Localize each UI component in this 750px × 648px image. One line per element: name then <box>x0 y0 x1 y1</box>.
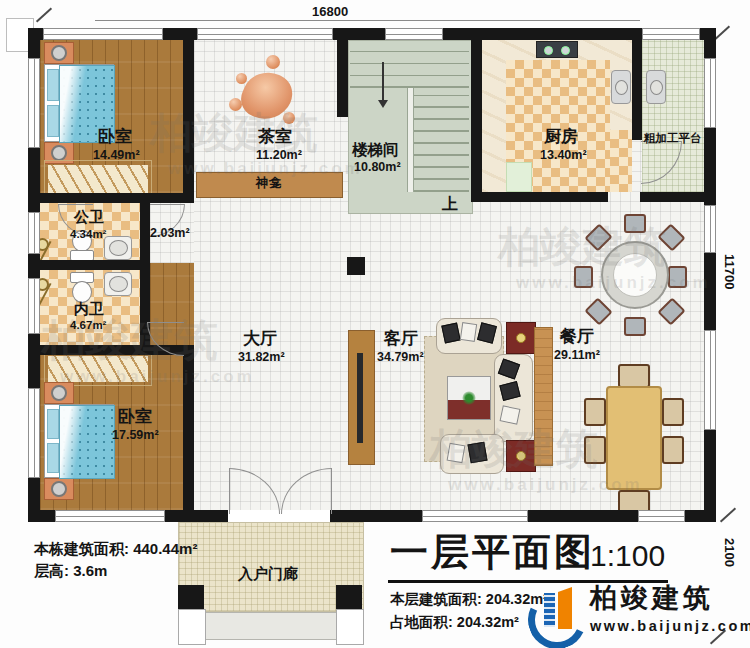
kitchen-sink <box>611 70 631 104</box>
window <box>43 28 163 40</box>
porch-column-left <box>178 585 204 609</box>
logo-icon <box>528 583 584 639</box>
bathroom-sink <box>104 236 132 260</box>
nightstand <box>44 42 74 64</box>
plan-title: 一层平面图 <box>390 533 595 571</box>
watermark: 柏竣建筑 <box>430 428 598 470</box>
stair-up-label: 上 <box>442 196 458 212</box>
window <box>28 58 40 148</box>
stair-right-flight <box>412 88 469 192</box>
brand-name: 柏竣建筑 <box>590 585 714 612</box>
logo-building-blue <box>544 593 555 627</box>
window <box>197 28 333 40</box>
footprint-area-line: 占地面积: 204.32m² <box>390 615 519 630</box>
wall-kitchen-platform <box>632 40 642 140</box>
bed-pillow <box>47 105 59 137</box>
bed <box>44 404 114 478</box>
window <box>638 510 685 522</box>
wall-under-kitchen-b <box>640 192 716 202</box>
platform-sink <box>646 70 666 104</box>
living-room-area: 34.79m² <box>377 351 424 364</box>
great-hall-label: 大厅 <box>243 330 277 347</box>
porch-steps <box>204 612 338 640</box>
wall-bath-divider <box>28 260 150 270</box>
window <box>422 510 528 522</box>
bedroom-bottom-label: 卧室 <box>118 408 152 425</box>
floor-plan: 柏竣建筑 www.baijunjz.com 柏竣建筑 www.baijunjz.… <box>0 0 750 648</box>
building-total-area: 本栋建筑面积: 440.44m² <box>34 541 197 556</box>
tea-art-dot <box>266 55 280 69</box>
bed-pillow <box>47 409 59 439</box>
porch-column-base <box>336 609 364 645</box>
corridor-area: 2.03m² <box>150 227 190 240</box>
dimension-top: 16800 <box>308 5 352 18</box>
dining-chair <box>662 398 684 426</box>
bedroom-top-label: 卧室 <box>98 128 132 145</box>
watermark-url: www.baijunjz.com <box>168 160 363 177</box>
logo-building-orange <box>558 587 572 629</box>
stairwell-area: 10.80m² <box>354 161 401 174</box>
window <box>28 212 40 254</box>
hall-column <box>347 257 365 275</box>
dimension-right-porch: 2100 <box>722 538 737 567</box>
wall-kitchen-left <box>471 40 482 202</box>
window <box>55 510 165 522</box>
private-bathroom-label: 内卫 <box>74 301 104 316</box>
corner-tick-top-right <box>714 26 730 41</box>
tv <box>357 353 363 443</box>
bed-pillow <box>47 443 59 473</box>
kitchen-label: 厨房 <box>544 128 578 145</box>
dining-room-label: 餐厅 <box>560 328 594 345</box>
dining-chair <box>584 398 606 426</box>
watermark-url: www.baijunjz.com <box>448 476 643 493</box>
window <box>28 388 40 478</box>
building-floor-height: 层高: 3.6m <box>34 563 107 578</box>
tv-cabinet <box>348 330 375 465</box>
plan-scale: 1:100 <box>590 541 665 571</box>
plant <box>462 391 476 405</box>
window <box>704 330 716 430</box>
watermark: 柏竣建筑 <box>42 318 218 362</box>
kitchen-mat <box>506 162 532 192</box>
bed-pillow <box>47 69 59 101</box>
corner-tick-top-left <box>36 8 52 23</box>
public-bathroom-area: 4.34m² <box>70 229 106 241</box>
nightstand <box>44 478 74 500</box>
tea-art-dot <box>236 73 247 84</box>
bed-mattress <box>59 405 115 479</box>
wall-under-kitchen-a <box>471 192 608 202</box>
watermark-url: www.baijunjz.com <box>516 274 711 291</box>
living-room-label: 客厅 <box>384 330 418 347</box>
prep-platform-label: 粗加工平台 <box>644 133 702 145</box>
watermark: 柏竣建筑 <box>498 226 666 268</box>
sofa-top <box>436 318 502 354</box>
stair-railing <box>407 88 414 192</box>
dining-chair <box>618 364 650 388</box>
tea-room-label: 茶室 <box>258 128 292 145</box>
brand-website: www.baijunjz.com <box>590 619 750 634</box>
window <box>642 28 700 40</box>
shrine-label: 神龛 <box>196 177 341 190</box>
window <box>385 28 443 40</box>
dimension-line-top <box>95 20 640 21</box>
brand-logo: 柏竣建筑 www.baijunjz.com <box>528 583 718 641</box>
logo-swoosh <box>520 583 594 648</box>
entry-porch-label: 入户门廊 <box>238 566 298 581</box>
bedroom-top-area: 14.49m² <box>93 149 140 162</box>
stair-arrow-head <box>378 100 388 108</box>
kitchen-checker-ext <box>610 130 632 192</box>
dining-chair <box>624 317 646 336</box>
burner <box>544 46 553 55</box>
bedroom-bottom-area: 17.59m² <box>112 429 159 442</box>
stairwell-label: 楼梯间 <box>352 142 399 158</box>
stair-upper-flight <box>350 48 469 88</box>
private-bathroom-area: 4.67m² <box>70 320 106 332</box>
burner <box>561 46 570 55</box>
dining-chair <box>662 436 684 464</box>
public-bathroom-label: 公卫 <box>74 209 104 224</box>
coffee-table <box>447 376 491 420</box>
wall-under-bedroom-top <box>28 193 194 203</box>
porch-column-right <box>336 585 362 609</box>
kitchen-area: 13.40m² <box>540 149 587 162</box>
window <box>704 58 716 128</box>
bathroom-sink <box>104 272 132 296</box>
watermark-url: www.baijunjz.com <box>60 368 255 385</box>
window <box>28 278 40 334</box>
stair-arrow-line <box>382 62 384 102</box>
great-hall-area: 31.82m² <box>238 351 285 364</box>
stove <box>536 41 578 58</box>
window <box>704 205 716 253</box>
floor-area-line: 本层建筑面积: 204.32m² <box>390 592 548 607</box>
porch-column-base <box>178 609 206 645</box>
corner-tick-bottom-right <box>720 508 736 523</box>
dining-room-area: 29.11m² <box>554 349 600 362</box>
dimension-right: 11700 <box>722 254 737 289</box>
side-cabinet <box>506 322 536 354</box>
tea-room-area: 11.20m² <box>256 149 302 162</box>
wall-tea-right <box>337 40 348 117</box>
